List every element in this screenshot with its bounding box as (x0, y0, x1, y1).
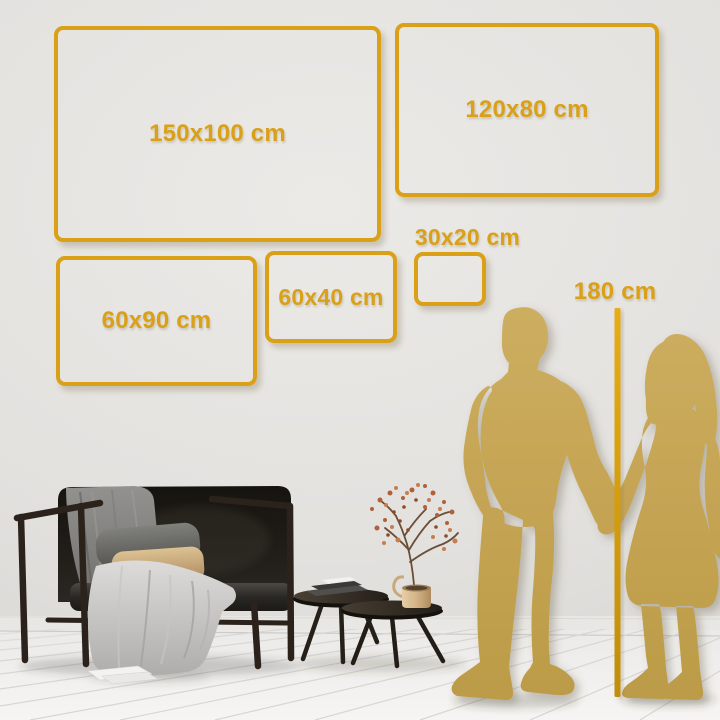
size-label-120x80: 120x80 cm (465, 98, 588, 122)
books-stack (306, 577, 368, 596)
height-ruler-line (615, 308, 621, 697)
size-frame-60x40: 60x40 cm (265, 251, 397, 343)
wood-floor (0, 560, 720, 720)
couple-silhouette (452, 307, 720, 700)
size-label-60x40: 60x40 cm (278, 286, 383, 309)
size-frame-30x20 (414, 252, 486, 306)
sofa-throw-blanket (66, 486, 160, 625)
sofa-wood-frame (17, 499, 291, 666)
coffee-table-large (293, 589, 389, 663)
baseboard (0, 616, 720, 631)
size-frame-120x80: 120x80 cm (395, 23, 659, 197)
sofa-cushion-tan (111, 546, 205, 587)
nesting-coffee-tables (293, 483, 458, 666)
sofa-cushion-gray (95, 522, 202, 569)
floor-papers (88, 666, 158, 684)
size-frame-150x100: 150x100 cm (54, 26, 381, 242)
brass-vase (394, 577, 431, 608)
sofa-drape-blanket (88, 560, 236, 675)
wall-art-size-guide: 150x100 cm 120x80 cm 60x90 cm 60x40 cm 3… (0, 0, 720, 720)
size-label-60x90: 60x90 cm (102, 309, 212, 333)
man-silhouette (452, 307, 624, 700)
size-label-30x20: 30x20 cm (405, 226, 530, 249)
size-label-150x100: 150x100 cm (149, 122, 286, 146)
coffee-table-small (341, 601, 443, 667)
floor-shadows (20, 656, 716, 708)
woman-silhouette (598, 334, 720, 700)
sofa-back (58, 486, 292, 602)
size-frame-60x90: 60x90 cm (56, 256, 257, 386)
sofa (17, 486, 292, 684)
height-ruler-label: 180 cm (557, 280, 673, 304)
sofa-seat (70, 583, 292, 611)
dried-flower-branch (370, 483, 458, 585)
